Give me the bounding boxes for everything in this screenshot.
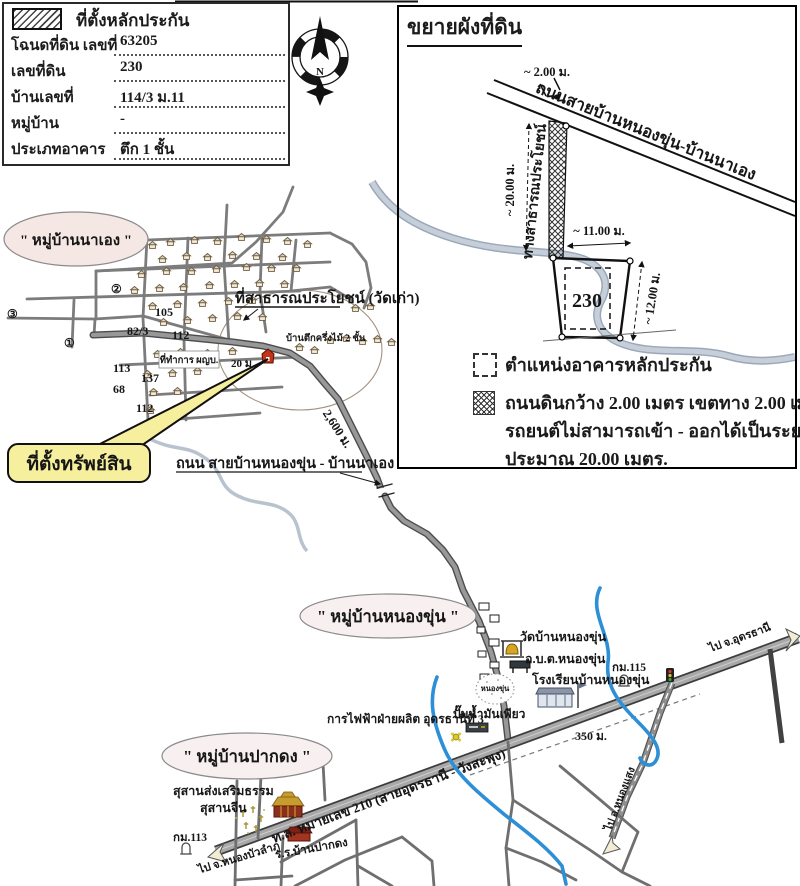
house-no-112b: 112	[136, 401, 153, 415]
house-no-68: 68	[113, 382, 125, 396]
building-type-value: ตึก 1 ชั้น	[120, 137, 174, 161]
village-value: -	[120, 111, 125, 128]
legend-road-line2: รถยนต์ไม่สามารถเข้า - ออกได้เป็นระยะทาง	[505, 416, 800, 445]
deed-no-value: 63205	[120, 33, 158, 50]
traffic-light-icon	[666, 668, 674, 682]
road-number-2: ②	[111, 282, 122, 296]
temple-label: วัดบ้านหนองขุ่น	[520, 630, 607, 645]
house-no-105: 105	[155, 305, 173, 319]
km113-label: กม.113	[173, 832, 207, 844]
km115-label: กม.115	[612, 662, 646, 674]
compass-rose-icon: N	[292, 16, 348, 106]
chinese-shrine-icon	[272, 792, 304, 817]
parcel-no-label: เลขที่ดิน	[11, 59, 65, 83]
stream-gray-lower	[148, 438, 307, 551]
public-land-label: ที่สาธารณประโยชน์ (วัดเก่า)	[235, 287, 419, 307]
dist-350m-label: 350 ม.	[575, 729, 607, 743]
inset-title: ขยายผังที่ดิน	[407, 11, 522, 47]
legend-building-label: ตำแหน่งอาคารหลักประกัน	[505, 350, 712, 379]
form-row-house-no: บ้านเลขที่ 114/3 ม.11	[4, 82, 288, 108]
village-name-nong-khun: " หมู่บ้านหนองขุ่น "	[317, 607, 459, 628]
pond-label: หนองขุ่น	[481, 684, 510, 693]
legend-road-line1: ถนนดินกว้าง 2.00 เมตร เขตทาง 2.00 เมตร	[505, 388, 800, 417]
house-note-label: บ้านตึกครึ่งไม้ 2 ชั้น	[286, 330, 366, 344]
road-arrow-south	[603, 836, 620, 854]
km113-milestone-icon	[180, 843, 192, 854]
cemetery-label-2: สุสานจีน	[200, 801, 247, 816]
form-row-parcel: เลขที่ดิน 230	[4, 56, 288, 82]
house-no-113: 113	[113, 361, 130, 375]
road-label-nong-khun-na-aeng: ถนน สายบ้านหนองขุ่น - บ้านนาเอง	[176, 455, 394, 472]
building-type-label: ประเภทอาคาร	[11, 137, 105, 161]
dist-20m-label: 20 ม.	[231, 358, 255, 370]
school-label-nong-khun: โรงเรียนบ้านหนองขุ่น	[531, 672, 650, 688]
land-plan-inset-box: ขยายผังที่ดิน ตำแหน่งอาคารหลักประกัน ถนน…	[397, 5, 797, 469]
house-no-82-3: 82/3	[127, 324, 148, 338]
side-road-dark	[770, 649, 782, 743]
building-position-legend-icon	[473, 353, 497, 377]
legend-road-line3: ประมาณ 20.00 เมตร.	[505, 444, 668, 473]
house-no-value: 114/3 ม.11	[120, 85, 185, 109]
compass-north-label: N	[316, 66, 324, 78]
village-name-na-aeng: " หมู่บ้านนาเอง "	[20, 232, 132, 250]
road-number-1: ①	[64, 336, 75, 350]
hatch-legend-swatch	[12, 8, 62, 30]
scanned-location-map-page: N ถนนสายบ้านหนองขุ่น-บ้านนาเอง ~ 2.00 ม.…	[0, 0, 800, 886]
deed-no-label: โฉนดที่ดิน เลขที่	[11, 33, 117, 57]
house-no-label: บ้านเลขที่	[11, 85, 74, 109]
collateral-info-form: ที่ตั้งหลักประกัน โฉนดที่ดิน เลขที่ 6320…	[2, 2, 290, 166]
house-no-112a: 112	[172, 328, 189, 342]
village-label: หมู่บ้าน	[11, 111, 59, 135]
form-row-building-type: ประเภทอาคาร ตึก 1 ชั้น	[4, 134, 288, 160]
village-name-pak-dong: " หมู่บ้านปากดง "	[183, 747, 311, 768]
dirt-road-legend-icon	[473, 391, 495, 415]
house-no-137: 137	[141, 371, 159, 385]
form-row-deed: โฉนดที่ดิน เลขที่ 63205	[4, 30, 288, 56]
gas-station-label: ปั๊มน้ำมันเพียว	[453, 704, 526, 721]
parcel-no-value: 230	[120, 59, 143, 76]
form-row-village: หมู่บ้าน -	[4, 108, 288, 134]
sao-label: อ.บ.ต.หนองขุ่น	[525, 652, 606, 667]
public-land-leader	[244, 309, 258, 320]
cemetery-label-1: สุสานส่งเสริมธรรม	[173, 784, 274, 799]
road-number-3: ③	[7, 307, 18, 321]
